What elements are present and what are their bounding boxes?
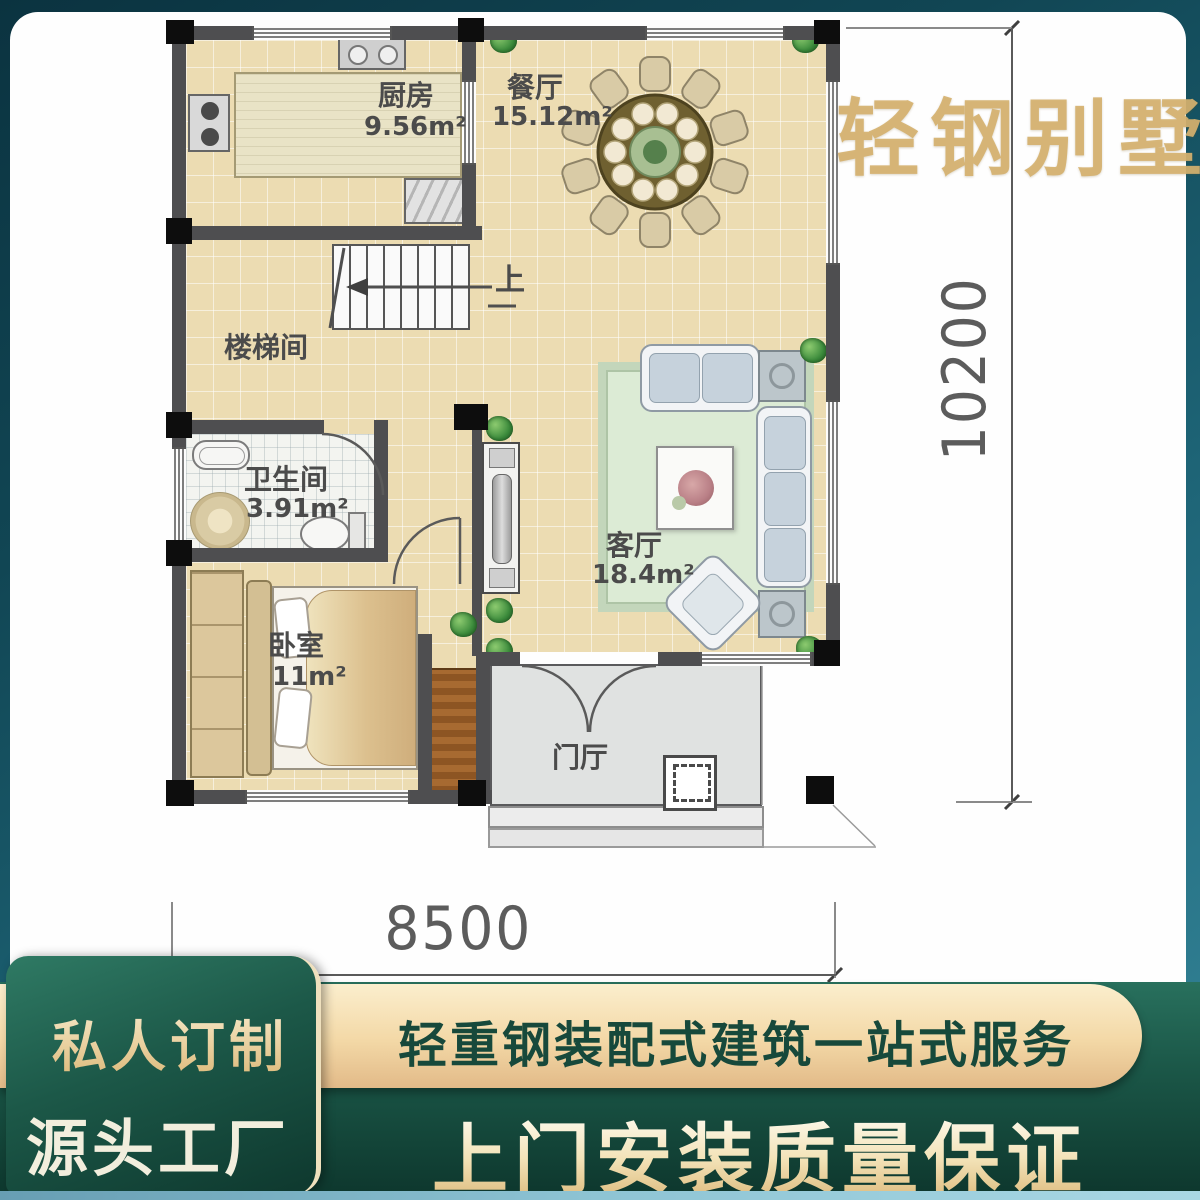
stairs-up-label: 上 — [495, 262, 525, 300]
footer-ribbon-text: 轻重钢装配式建筑一站式服务 — [330, 1006, 1142, 1077]
room-area-bedroom: 11m² — [272, 662, 347, 693]
room-area-bathroom: 3.91m² — [246, 494, 349, 525]
room-label-bedroom: 卧室 — [268, 628, 324, 663]
bottom-edge-strip — [0, 1191, 1200, 1200]
brand-title: 轻钢别墅 — [836, 72, 1200, 193]
footer-headline: 上门安装质量保证 — [330, 1098, 1190, 1200]
room-label-bathroom: 卫生间 — [244, 462, 328, 497]
extension-line — [956, 801, 1032, 803]
footer-badge-line2: 源头工厂 — [26, 1098, 290, 1188]
room-label-dining: 餐厅 — [507, 70, 563, 105]
dimension-width-value: 8500 — [384, 894, 532, 964]
room-area-living: 18.4m² — [592, 560, 695, 591]
dimension-height-value: 10200 — [930, 305, 1000, 461]
room-area-kitchen: 9.56m² — [364, 112, 467, 143]
extension-line — [846, 27, 1012, 29]
extension-line — [834, 902, 836, 978]
footer-badge-line1: 私人订制 — [52, 1002, 288, 1082]
room-label-living: 客厅 — [606, 528, 662, 563]
dining-table-set — [560, 57, 750, 247]
room-area-dining: 15.12m² — [492, 102, 613, 133]
room-label-foyer: 门厅 — [552, 740, 608, 775]
advert-page: 厨房 9.56m² 餐厅 15.12m² 楼梯间 上 卫生间 3.91m² 卧室… — [0, 0, 1200, 1200]
room-label-stairwell: 楼梯间 — [224, 330, 308, 365]
room-label-kitchen: 厨房 — [378, 78, 434, 113]
